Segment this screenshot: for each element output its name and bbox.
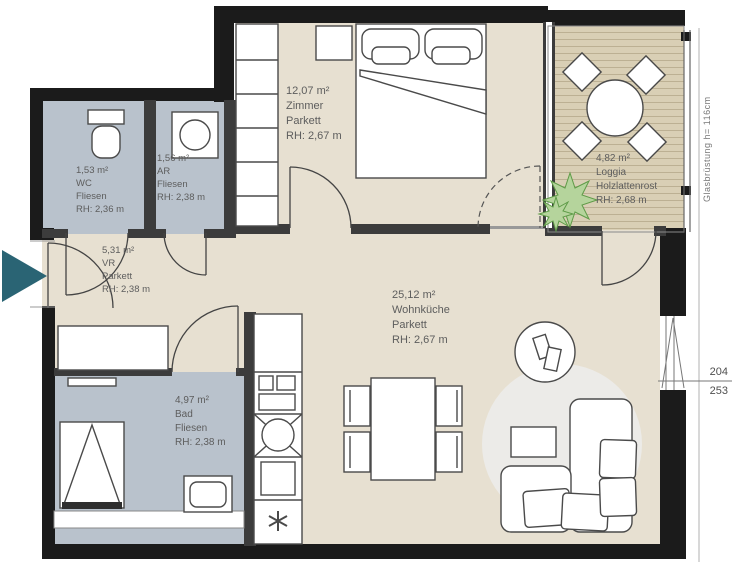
wardrobe <box>236 24 278 226</box>
room-area: 1,56 m² <box>157 152 205 165</box>
room-area: 25,12 m² <box>392 288 450 303</box>
dimension-lower: 253 <box>700 385 728 397</box>
room-area: 4,82 m² <box>596 152 657 166</box>
room-height: RH: 2,38 m <box>175 436 226 450</box>
window-right <box>660 316 686 390</box>
kitchen-block <box>254 314 302 544</box>
glass-railing <box>684 30 690 232</box>
washbasin <box>184 476 232 512</box>
room-height: RH: 2,38 m <box>102 283 150 296</box>
loggia-table <box>587 80 643 136</box>
room-label-wohnkueche: 25,12 m² Wohnküche Parkett RH: 2,67 m <box>392 288 450 348</box>
door-arc-dashed <box>478 166 540 228</box>
room-area: 5,31 m² <box>102 244 150 257</box>
side-table <box>515 322 575 382</box>
dimension-upper: 204 <box>700 366 728 378</box>
room-label-zimmer: 12,07 m² Zimmer Parkett RH: 2,67 m <box>286 84 342 144</box>
room-name: Bad <box>175 408 226 422</box>
room-floor: Holzlattenrost <box>596 180 657 194</box>
floor-plan: 1,53 m² WC Fliesen RH: 2,36 m 1,56 m² AR… <box>0 0 732 576</box>
room-height: RH: 2,36 m <box>76 203 124 216</box>
room-height: RH: 2,67 m <box>392 333 450 348</box>
room-label-loggia: 4,82 m² Loggia Holzlattenrost RH: 2,68 m <box>596 152 657 208</box>
room-height: RH: 2,68 m <box>596 194 657 208</box>
room-floor: Fliesen <box>76 190 124 203</box>
shower <box>60 422 124 509</box>
entry-frame-lines <box>30 241 55 307</box>
room-height: RH: 2,67 m <box>286 129 342 144</box>
room-name: Zimmer <box>286 99 342 114</box>
room-name: VR <box>102 257 150 270</box>
vr-wardrobe <box>58 326 168 370</box>
room-height: RH: 2,38 m <box>157 191 205 204</box>
bed <box>356 24 486 178</box>
room-name: Loggia <box>596 166 657 180</box>
dining-table <box>371 378 435 480</box>
room-label-wc: 1,53 m² WC Fliesen RH: 2,36 m <box>76 164 124 216</box>
room-name: WC <box>76 177 124 190</box>
room-name: AR <box>157 165 205 178</box>
room-area: 12,07 m² <box>286 84 342 99</box>
room-area: 1,53 m² <box>76 164 124 177</box>
room-label-ar: 1,56 m² AR Fliesen RH: 2,38 m <box>157 152 205 204</box>
room-floor: Fliesen <box>157 178 205 191</box>
room-name: Wohnküche <box>392 303 450 318</box>
room-floor: Fliesen <box>175 422 226 436</box>
room-label-bad: 4,97 m² Bad Fliesen RH: 2,38 m <box>175 394 226 450</box>
bath-counter <box>54 511 244 528</box>
room-floor: Parkett <box>102 270 150 283</box>
toilet <box>88 110 124 158</box>
radiator <box>68 378 116 386</box>
coffee-table <box>511 427 556 457</box>
room-area: 4,97 m² <box>175 394 226 408</box>
railing-height-label: Glasbrüstung h= 116cm <box>702 62 712 202</box>
room-floor: Parkett <box>286 114 342 129</box>
room-label-vr: 5,31 m² VR Parkett RH: 2,38 m <box>102 244 150 296</box>
nightstand <box>316 26 352 60</box>
room-floor: Parkett <box>392 318 450 333</box>
